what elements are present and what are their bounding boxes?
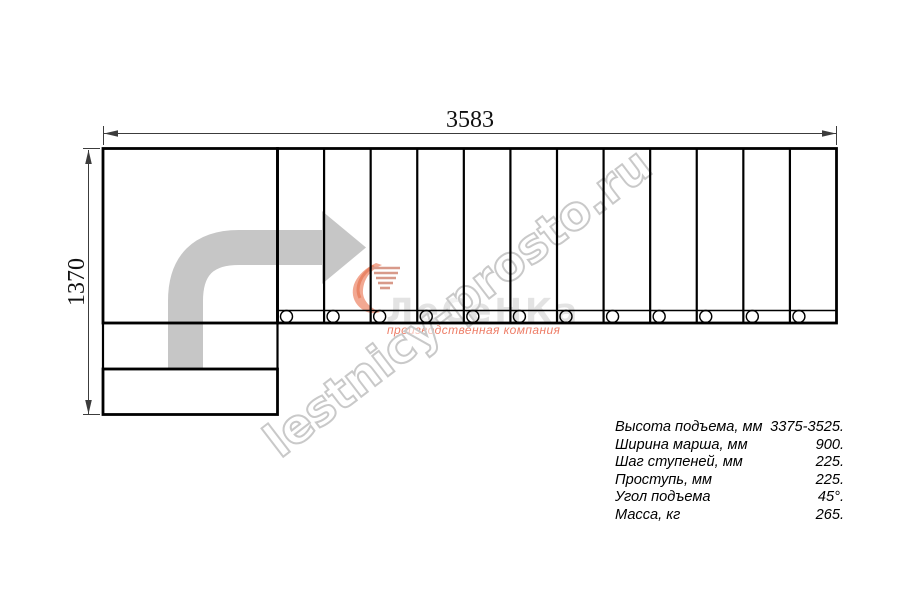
height-dimension-arrow-top <box>85 150 92 164</box>
spec-label: Высота подъема, мм <box>615 419 763 437</box>
width-dimension-label: 3583 <box>446 107 494 133</box>
spec-row: Масса, кг 265. <box>615 507 844 525</box>
spec-value: 225. <box>816 472 844 490</box>
step-marker-circle <box>420 311 432 323</box>
spec-value: 3375-3525. <box>770 419 844 437</box>
step-marker-circle <box>793 311 805 323</box>
width-dimension-arrow-right <box>822 130 836 137</box>
spec-label: Проступь, мм <box>615 472 712 490</box>
spec-value: 45°. <box>818 489 844 507</box>
spec-label: Масса, кг <box>615 507 680 525</box>
spec-row: Высота подъема, мм 3375-3525. <box>615 419 844 437</box>
spec-row: Шаг ступеней, мм 225. <box>615 454 844 472</box>
spec-row: Проступь, мм 225. <box>615 472 844 490</box>
spec-value: 900. <box>816 437 844 455</box>
landing-outline <box>103 149 278 324</box>
step-marker-circle <box>746 311 758 323</box>
step-marker-circle <box>467 311 479 323</box>
spec-value: 225. <box>816 454 844 472</box>
step-marker-circle <box>607 311 619 323</box>
spec-value: 265. <box>816 507 844 525</box>
spec-label: Шаг ступеней, мм <box>615 454 743 472</box>
spec-label: Ширина марша, мм <box>615 437 748 455</box>
step-marker-circle <box>327 311 339 323</box>
width-dimension-arrow-left <box>104 130 118 137</box>
steps-group <box>281 149 805 324</box>
entry-step-2 <box>103 369 278 415</box>
spec-row: Угол подъема 45°. <box>615 489 844 507</box>
entry-step-1 <box>103 323 278 369</box>
height-dimension-arrow-bottom <box>85 400 92 414</box>
step-marker-circle <box>374 311 386 323</box>
spec-row: Ширина марша, мм 900. <box>615 437 844 455</box>
spec-table: Высота подъема, мм 3375-3525. Ширина мар… <box>615 419 844 525</box>
step-marker-circle <box>281 311 293 323</box>
step-marker-circle <box>653 311 665 323</box>
height-dimension-label: 1370 <box>64 258 90 306</box>
step-marker-circle <box>513 311 525 323</box>
spec-label: Угол подъема <box>615 489 710 507</box>
staircase-plan-canvas: ЛеСеНКа производственная компания lestni… <box>0 0 900 600</box>
step-marker-circle <box>700 311 712 323</box>
step-marker-circle <box>560 311 572 323</box>
